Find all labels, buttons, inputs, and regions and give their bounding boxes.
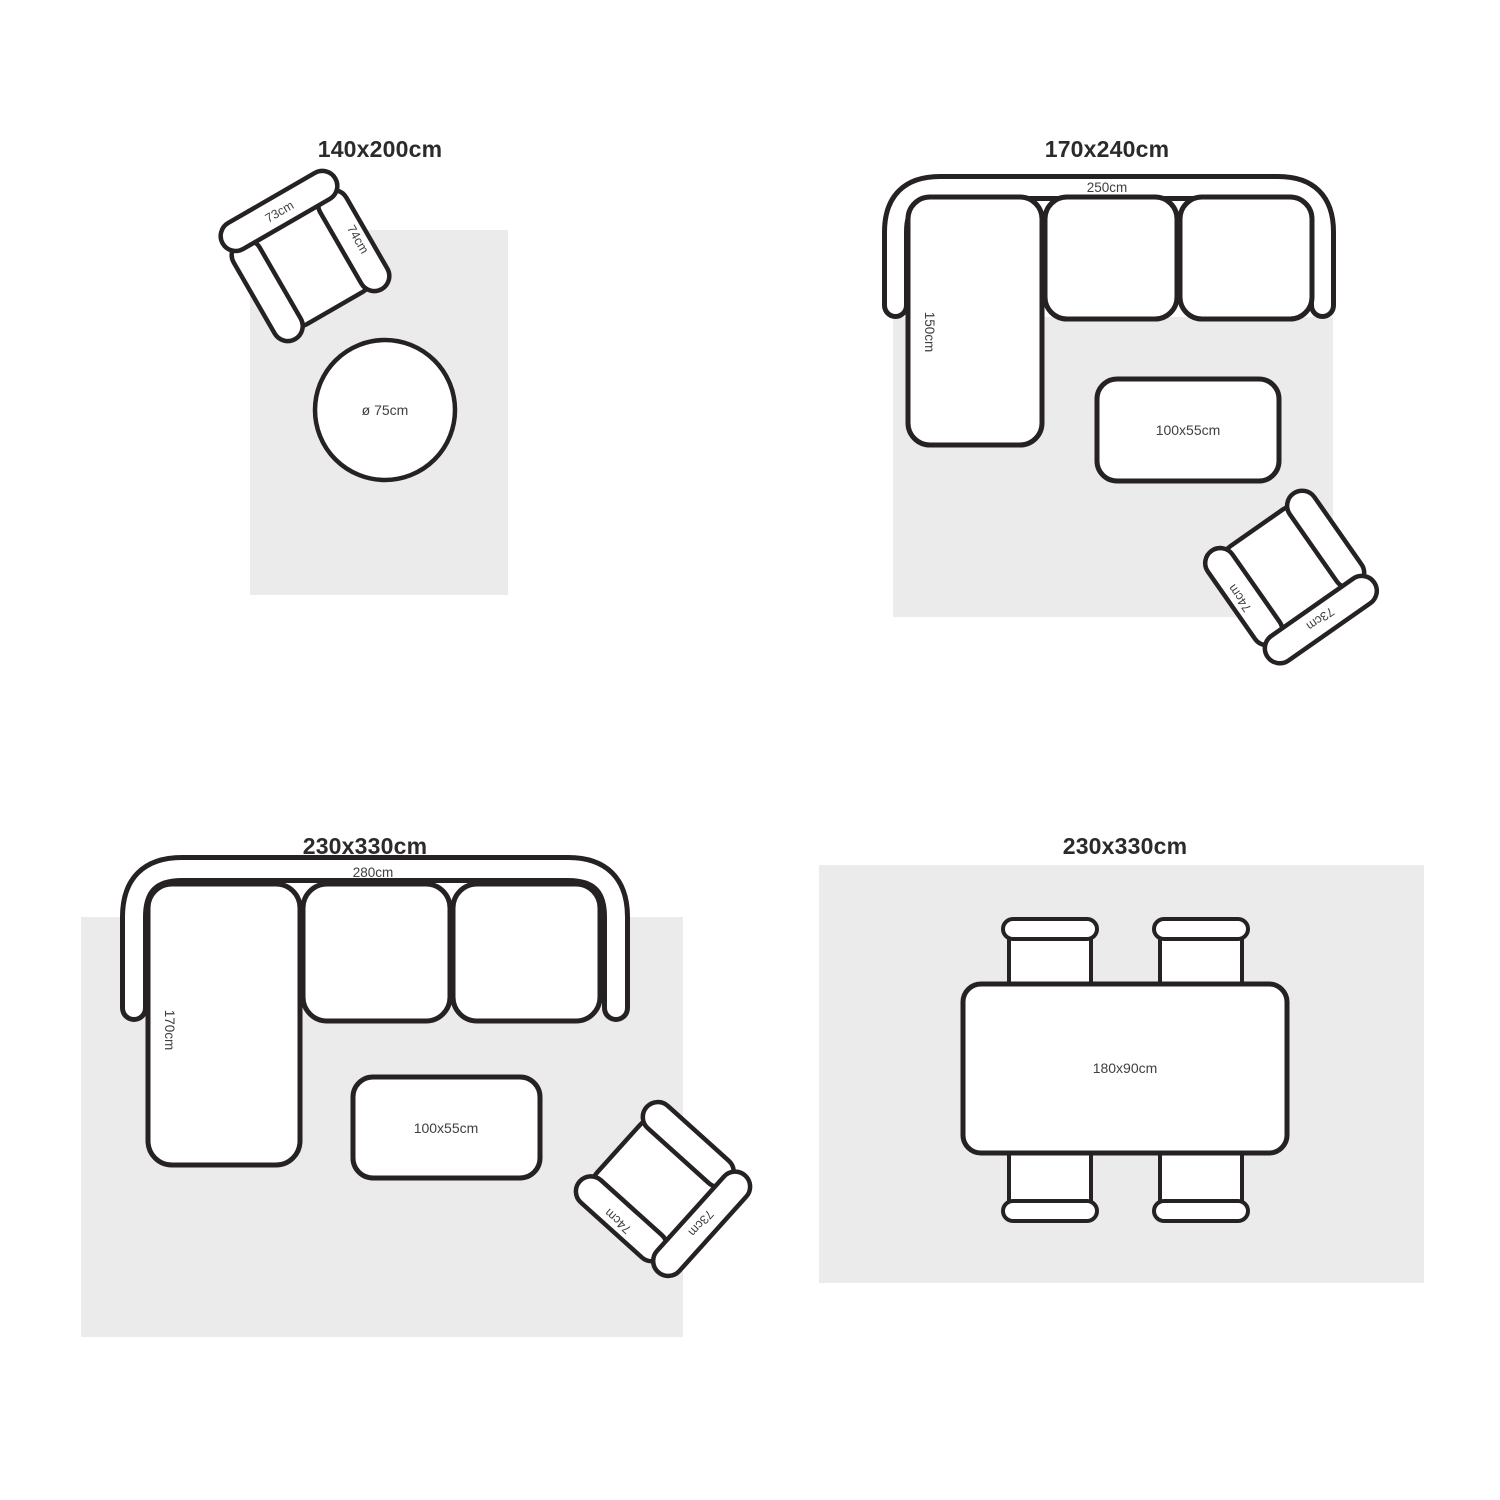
dining-table: 180x90cm — [963, 984, 1287, 1153]
dining-chair-back-bottom-right — [1154, 1201, 1248, 1221]
dining-chair-seat-bottom-right — [1160, 1148, 1242, 1206]
quadrant-230x330-dining: 230x330cm 180x90cm — [0, 0, 1500, 1500]
dining-chair-back-top-left — [1003, 919, 1097, 939]
dining-chair-back-top-right — [1154, 919, 1248, 939]
furniture-layer-230x330-dining: 180x90cm — [0, 0, 1500, 1500]
dining-chair-back-bottom-left — [1003, 1201, 1097, 1221]
dining-table-dimension: 180x90cm — [1093, 1060, 1158, 1076]
rug-size-guide: 140x200cm 73cm 74cm ø 75cm 170x240cm — [0, 0, 1500, 1500]
dining-chair-seat-bottom-left — [1009, 1148, 1091, 1206]
